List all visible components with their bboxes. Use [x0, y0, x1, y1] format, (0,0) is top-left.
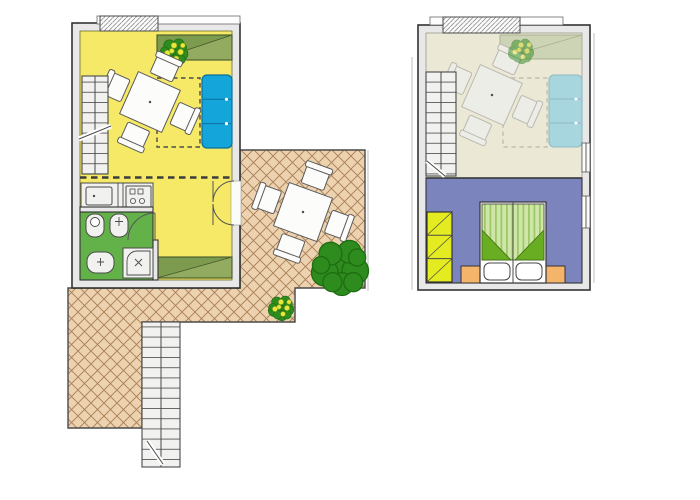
nightstand-right	[546, 266, 565, 283]
floor-plan-drawing	[0, 0, 700, 500]
sideboard-bottom	[157, 257, 232, 278]
floor-plan-canvas	[0, 0, 700, 500]
double-bed	[480, 202, 546, 283]
bathroom	[80, 207, 158, 280]
sofa	[202, 75, 232, 148]
gallery-window	[443, 17, 520, 33]
pillow-right	[516, 263, 542, 280]
living-room-window	[100, 16, 158, 31]
wardrobe	[427, 212, 452, 282]
bidet	[110, 214, 128, 237]
kitchen-counter	[81, 183, 153, 209]
shower	[123, 248, 153, 278]
pillow-left	[484, 263, 510, 280]
toilet	[86, 214, 104, 237]
interior-stairs-ground	[79, 76, 111, 174]
interior-stairs-upper	[426, 72, 456, 176]
washbasin	[87, 252, 114, 273]
gallery-sofa-faded	[549, 75, 582, 147]
kitchen-sink	[86, 187, 112, 205]
outdoor-stairs	[142, 322, 180, 467]
stove	[126, 186, 151, 207]
ground-floor-plan	[68, 16, 369, 467]
upper-floor-plan	[412, 17, 594, 290]
nightstand-left	[461, 266, 480, 283]
